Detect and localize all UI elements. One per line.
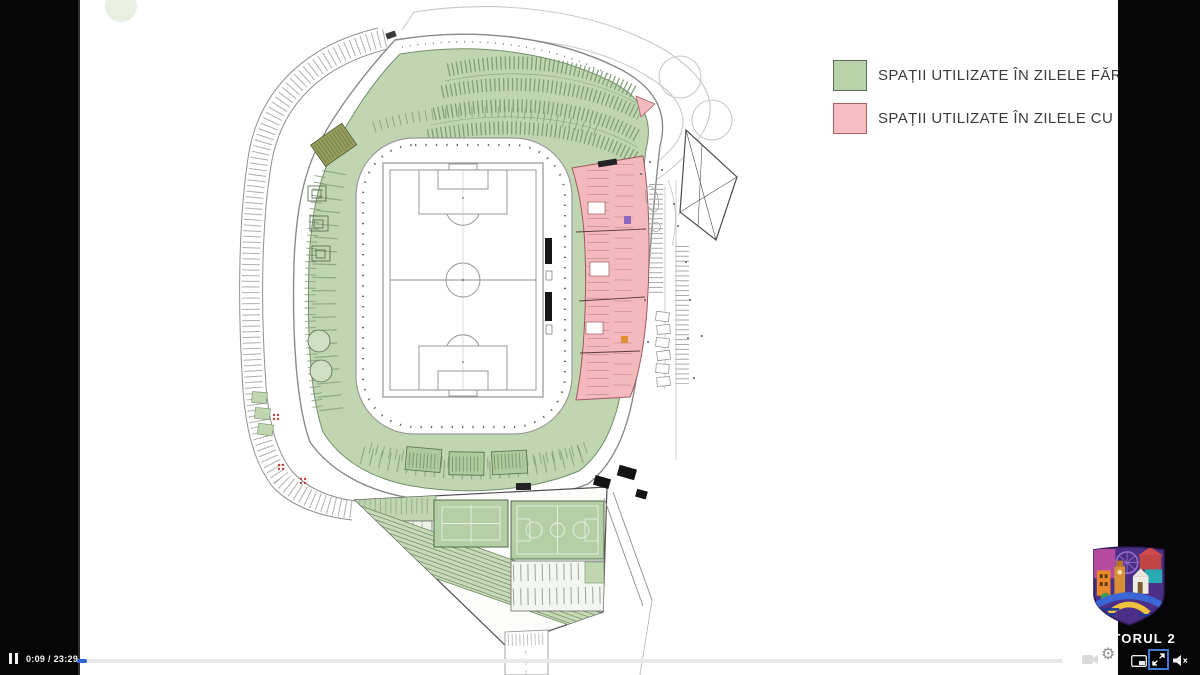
volume-muted-icon xyxy=(1173,655,1187,666)
tunnel-block xyxy=(545,238,552,264)
exit-fullscreen-icon xyxy=(1152,653,1165,666)
progress-played xyxy=(77,659,87,663)
fullscreen-button[interactable] xyxy=(1148,649,1169,670)
legend-swatch-green xyxy=(833,60,867,91)
triangle-building xyxy=(680,130,737,240)
pitch xyxy=(383,163,552,397)
legend-swatch-pink xyxy=(833,103,867,134)
tree-canopy xyxy=(105,0,137,22)
training-annex xyxy=(352,483,607,646)
picture-in-picture-icon xyxy=(1132,656,1147,667)
basketball-court xyxy=(511,501,604,559)
progress-bar[interactable] xyxy=(77,659,1063,663)
tennis-court xyxy=(434,500,508,547)
parked-cars xyxy=(655,311,670,386)
sector2-logo: SECTORUL 2 xyxy=(1074,543,1184,646)
legend-label-match-days: SPAȚII UTILIZATE ÎN ZILELE CU MECI xyxy=(878,110,1157,127)
video-camera-icon xyxy=(1081,653,1099,666)
settings-gear-icon[interactable]: ⚙ xyxy=(1101,646,1115,662)
pause-button[interactable] xyxy=(9,653,18,664)
volume-muted-button[interactable] xyxy=(1172,654,1189,667)
logo-text: SECTORUL 2 xyxy=(1074,631,1184,646)
video-frame: SPAȚII UTILIZATE ÎN ZILELE FĂRĂ MECI SPA… xyxy=(0,0,1200,675)
letterbox-left xyxy=(0,0,80,675)
sector2-crest-icon xyxy=(1090,543,1168,627)
pip-button[interactable] xyxy=(1131,655,1147,667)
time-display: 0:09 / 23:29 xyxy=(26,654,78,664)
pause-icon xyxy=(9,653,12,664)
